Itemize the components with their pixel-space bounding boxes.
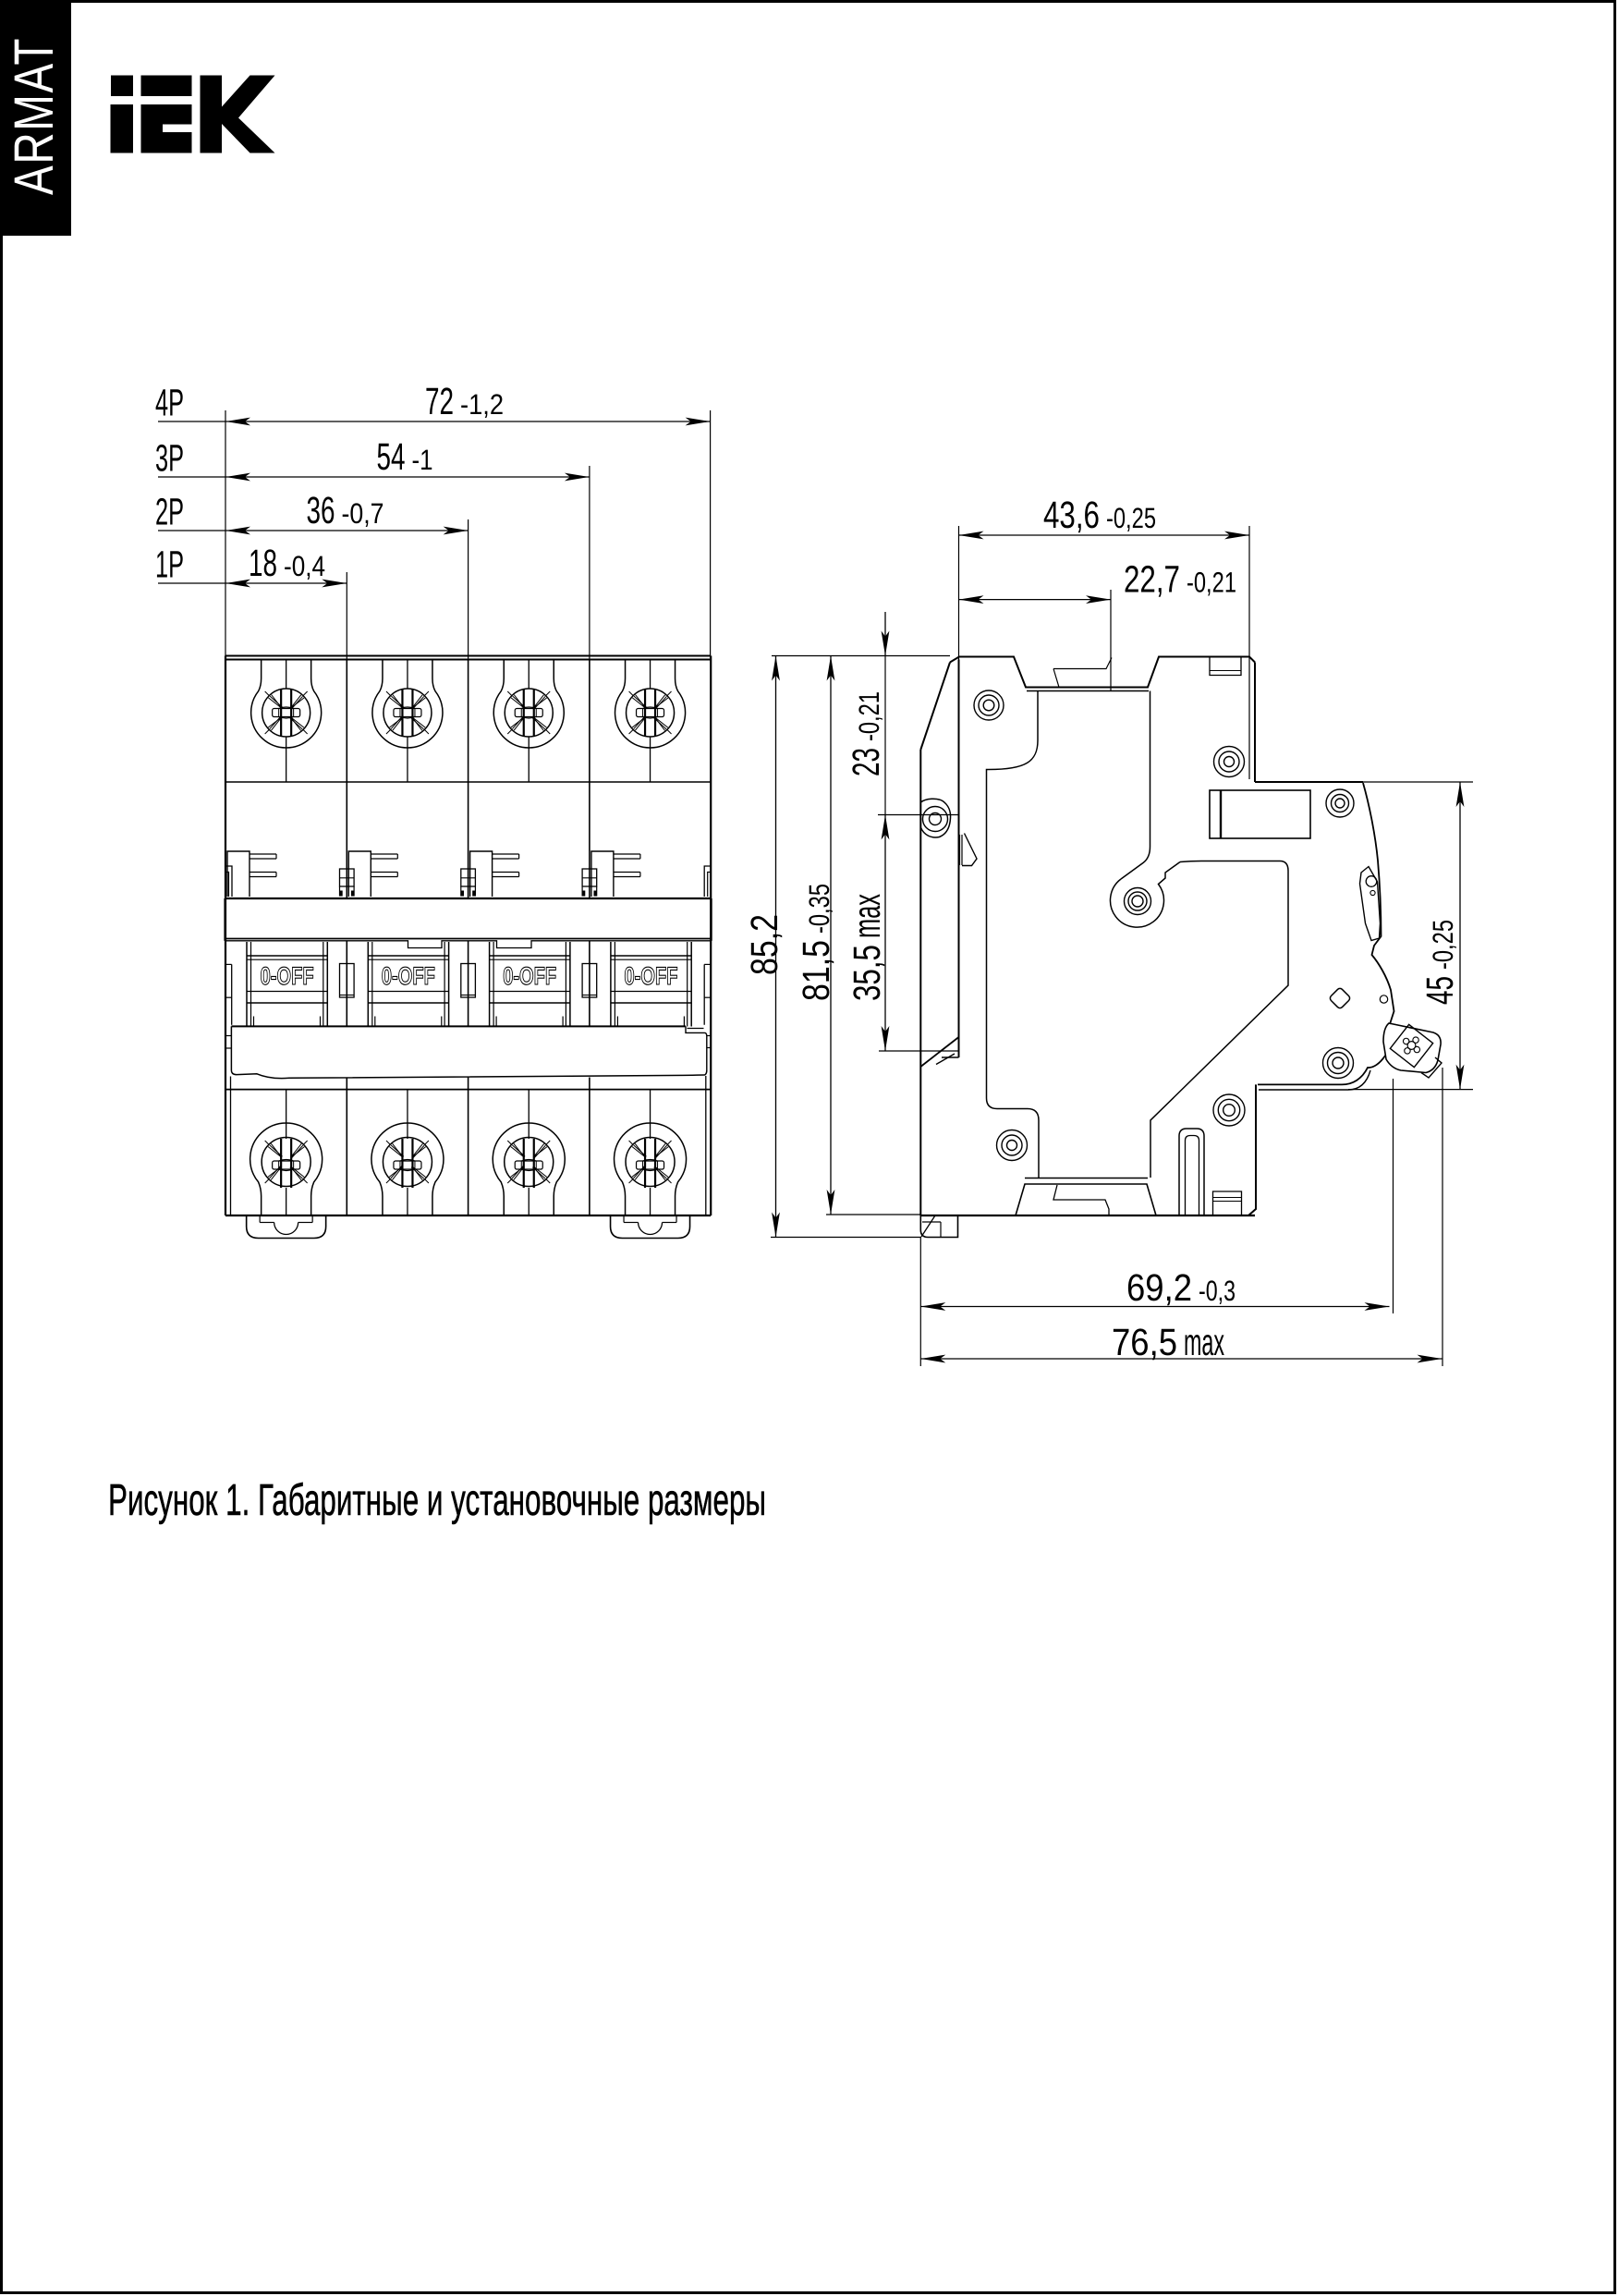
svg-text:2P: 2P (155, 491, 184, 533)
svg-text:0-OFF: 0-OFF (382, 962, 435, 990)
svg-text:1P: 1P (155, 543, 184, 586)
svg-text:0-OFF: 0-OFF (503, 962, 556, 990)
svg-text:76,5max: 76,5max (1112, 1321, 1224, 1363)
svg-text:3P: 3P (155, 437, 184, 480)
svg-text:85,2: 85,2 (743, 914, 785, 975)
svg-text:ARMAT: ARMAT (3, 37, 65, 195)
svg-text:0-OFF: 0-OFF (261, 962, 314, 990)
svg-text:0-OFF: 0-OFF (625, 962, 678, 990)
svg-text:Рисунок 1. Габаритные и устано: Рисунок 1. Габаритные и установочные раз… (108, 1476, 766, 1525)
svg-text:35,5max: 35,5max (846, 894, 888, 1001)
svg-text:4P: 4P (155, 382, 184, 424)
